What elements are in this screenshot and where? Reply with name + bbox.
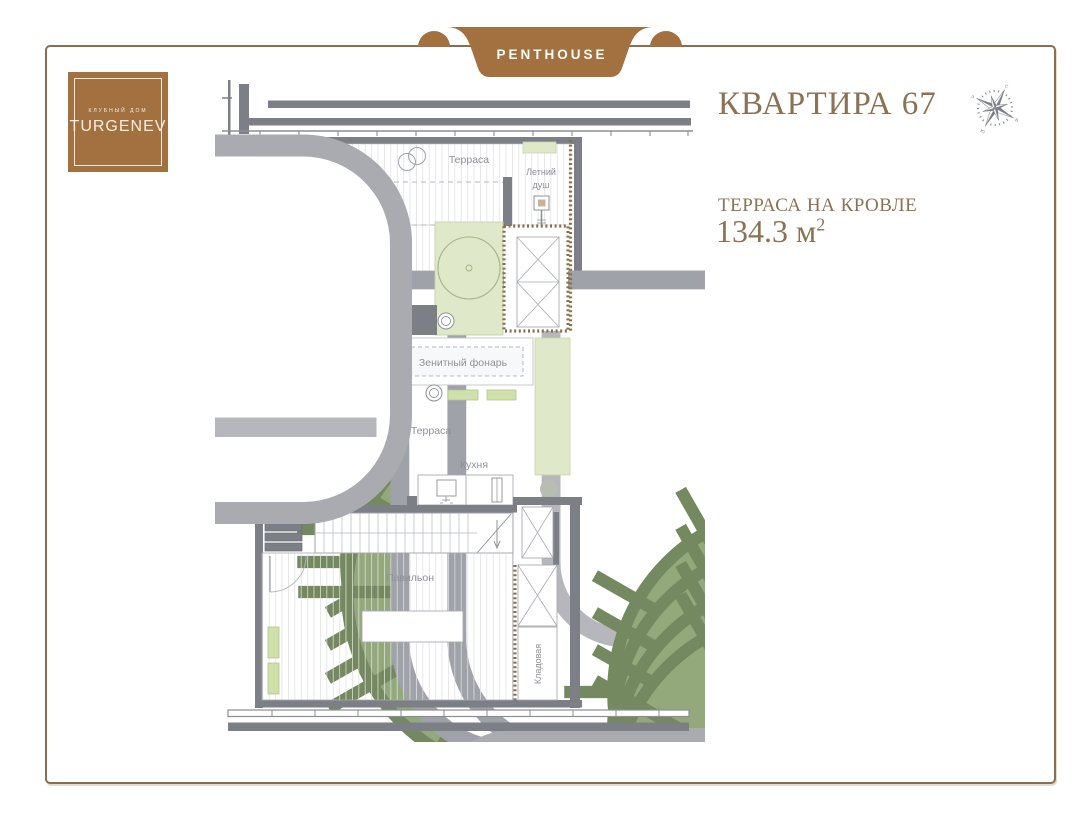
compass-south-label: Ю	[979, 128, 986, 135]
logo-title: TURGENEV	[70, 118, 167, 136]
planter-icon	[268, 627, 279, 658]
plan-label-kitchen: Кухня	[460, 459, 488, 471]
pot-icon	[438, 313, 454, 329]
logo-subtitle: КЛУБНЫЙ ДОМ	[88, 108, 147, 114]
bench-icon	[523, 142, 556, 153]
floor-plan: Терраса Беседка с качелями Летний душ	[215, 72, 705, 742]
dining-table	[362, 611, 463, 642]
ribbon-label: PENTHOUSE	[496, 47, 607, 62]
skylight-box: Зенитный фонарь	[392, 338, 533, 385]
area-sup: 2	[816, 214, 825, 234]
plan-label-terrace-mid: Терраса	[411, 425, 451, 437]
plan-label-storage: Кладовая	[533, 644, 543, 684]
compass-east-label: В	[1014, 117, 1019, 123]
compass-star: С В Ю З	[965, 78, 1025, 138]
compass-west-label: З	[970, 94, 975, 100]
brand-logo: КЛУБНЫЙ ДОМ TURGENEV	[68, 72, 168, 172]
round-table-icon	[426, 385, 442, 401]
plan-label-pavilion: Павильон	[386, 572, 434, 584]
shafts-storage: Кладовая	[518, 507, 557, 700]
brochure-page: КЛУБНЫЙ ДОМ TURGENEV PENTHOUSE КВАРТИРА …	[0, 0, 1092, 813]
storage-room: Кладовая	[518, 627, 557, 700]
penthouse-ribbon: PENTHOUSE	[416, 26, 684, 78]
compass-rose-icon: С В Ю З	[965, 78, 1025, 138]
ribbon-ear-right	[650, 31, 682, 47]
bottom-railing	[228, 710, 689, 717]
plan-label-skylight: Зенитный фонарь	[419, 357, 508, 369]
plan-label-shower-1: Летний	[526, 167, 556, 177]
stair-strip	[315, 513, 513, 553]
bench-icon	[487, 390, 516, 400]
bench-icon	[448, 390, 478, 400]
ribbon-ear-left	[418, 31, 450, 47]
plan-label-shower-2: душ	[533, 180, 550, 190]
plan-label-terrace-top: Терраса	[449, 154, 489, 166]
chair-icon	[215, 146, 401, 514]
logo-frame: КЛУБНЫЙ ДОМ TURGENEV	[74, 78, 162, 166]
area-number: 134.3 м	[716, 213, 816, 249]
shaft-x-icon	[522, 507, 553, 558]
central-tree-planter	[435, 222, 503, 335]
area-value: 134.3 м2	[716, 213, 825, 250]
apartment-title: КВАРТИРА 67	[718, 86, 937, 123]
compass-points	[967, 80, 1024, 137]
glazing-x-icon	[517, 237, 559, 327]
bottom-parapet	[228, 723, 689, 732]
shrub-icon	[540, 480, 558, 498]
shaft-x-icon	[518, 565, 557, 626]
upper-parapet-walls	[222, 80, 693, 136]
compass-north-label: С	[1004, 83, 1010, 89]
planter-icon	[268, 663, 279, 694]
